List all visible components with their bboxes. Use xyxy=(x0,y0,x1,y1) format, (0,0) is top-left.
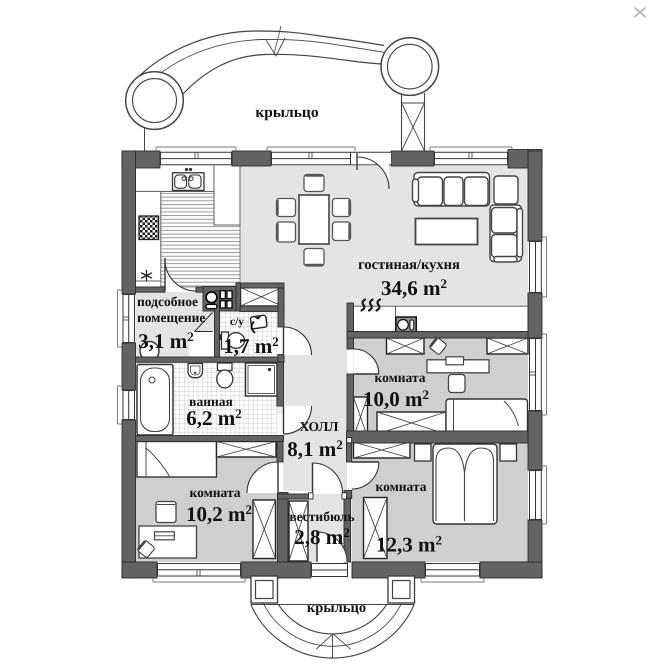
svg-text:крыльцо: крыльцо xyxy=(255,104,318,121)
svg-text:6,2 m2: 6,2 m2 xyxy=(186,406,242,430)
svg-text:помещение: помещение xyxy=(137,310,205,325)
svg-text:гостиная/кухня: гостиная/кухня xyxy=(358,257,460,273)
svg-text:34,6 m2: 34,6 m2 xyxy=(381,276,447,300)
svg-text:крыльцо: крыльцо xyxy=(307,600,366,616)
svg-text:12,3 m2: 12,3 m2 xyxy=(376,533,442,557)
svg-text:10,0 m2: 10,0 m2 xyxy=(363,387,429,411)
svg-text:комната: комната xyxy=(189,485,240,500)
svg-text:2,8 m2: 2,8 m2 xyxy=(294,525,350,549)
svg-text:3,1 m2: 3,1 m2 xyxy=(138,329,194,353)
svg-text:1,7 m2: 1,7 m2 xyxy=(223,334,279,358)
svg-text:с/у: с/у xyxy=(230,316,244,328)
svg-text:комната: комната xyxy=(375,479,426,494)
svg-text:ХОЛЛ: ХОЛЛ xyxy=(299,419,338,434)
svg-text:вестибюль: вестибюль xyxy=(289,509,354,524)
svg-text:10,2 m2: 10,2 m2 xyxy=(186,502,252,526)
svg-text:комната: комната xyxy=(374,370,425,385)
svg-text:8,1 m2: 8,1 m2 xyxy=(287,437,343,461)
svg-text:подсобное: подсобное xyxy=(137,294,198,309)
